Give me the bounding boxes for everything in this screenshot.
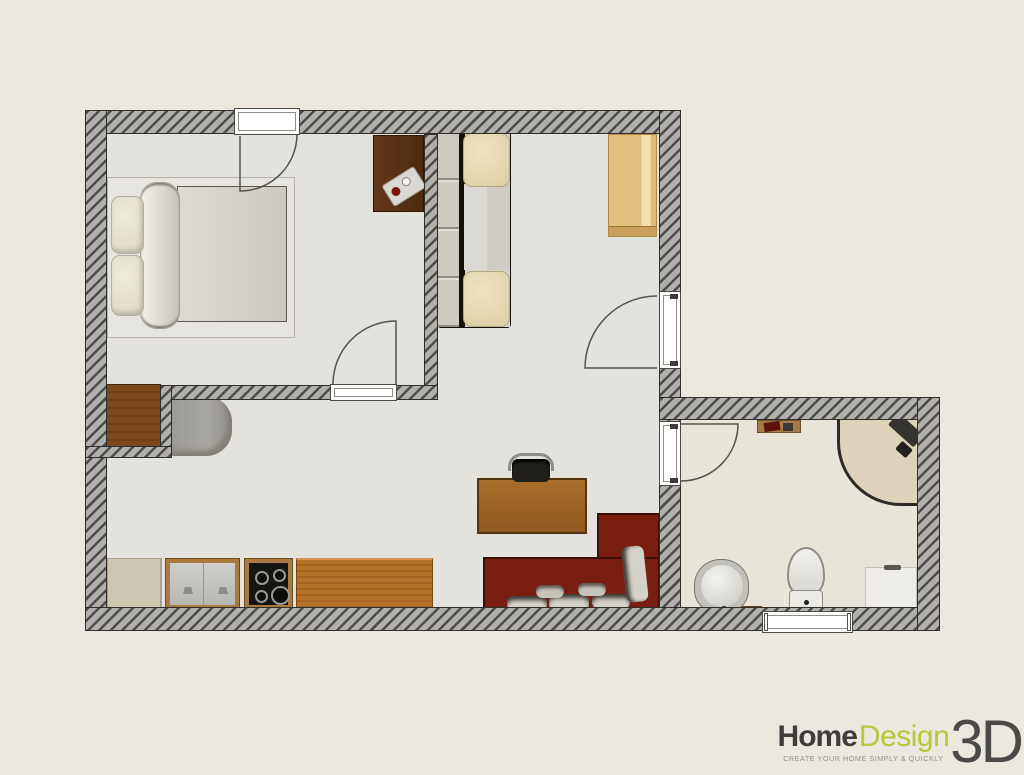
dresser[interactable] — [106, 384, 161, 447]
hinge-icon — [670, 478, 678, 483]
shelf-item — [763, 421, 780, 432]
tray-red-button — [390, 185, 402, 197]
white-sofa[interactable] — [437, 130, 511, 328]
wall-north[interactable] — [85, 110, 681, 134]
kitchen-cabinet[interactable] — [107, 558, 162, 610]
office-desk[interactable] — [477, 478, 587, 534]
wall-niche-south[interactable] — [85, 446, 172, 458]
door-frame — [663, 295, 677, 365]
logo-word-design: Design — [859, 720, 949, 753]
double-bed[interactable] — [177, 186, 287, 322]
door-frame — [334, 388, 393, 397]
office-chair-seat[interactable] — [512, 459, 550, 482]
burner-icon — [273, 569, 286, 582]
cooktop[interactable] — [244, 558, 293, 610]
bidet-bowl — [701, 565, 743, 607]
bathroom-window[interactable] — [762, 611, 853, 633]
flush-button-icon — [804, 600, 809, 605]
logo-word-home: Home — [778, 720, 857, 753]
sofa-pillow — [463, 133, 510, 187]
tray-dial — [400, 175, 412, 187]
bidet[interactable] — [694, 559, 749, 613]
floor-plan — [0, 0, 1024, 768]
window-end-cap — [847, 613, 851, 631]
sink-divider — [203, 563, 204, 605]
armchair[interactable] — [170, 396, 232, 456]
logo-tagline: CREATE YOUR HOME SIMPLY & QUICKLY — [783, 754, 943, 763]
washer-handle — [884, 565, 901, 570]
hinge-icon — [670, 361, 678, 366]
brand-logo: HomeDesign CREATE YOUR HOME SIMPLY & QUI… — [778, 719, 1021, 766]
sofa-backrest — [438, 131, 459, 327]
burner-icon — [255, 571, 269, 585]
burner-icon — [255, 590, 268, 603]
media-tray[interactable] — [381, 166, 426, 207]
bed-bolster[interactable] — [140, 182, 180, 329]
door-frame — [663, 425, 677, 482]
window-end-cap — [764, 613, 768, 631]
sofa-pillow — [578, 583, 606, 596]
wall-bathroom-north[interactable] — [659, 397, 940, 420]
wall-bathroom-east[interactable] — [917, 397, 940, 631]
sofa-seat-cushion — [487, 184, 510, 270]
kitchen-counter[interactable] — [296, 558, 433, 608]
entry-door[interactable] — [659, 291, 681, 369]
bedroom-south-door[interactable] — [330, 384, 397, 401]
sofa-seat-cushion — [464, 184, 487, 270]
burner-icon — [271, 586, 290, 605]
window-frame — [766, 615, 849, 629]
bed-pillow[interactable] — [111, 255, 144, 316]
bed-pillow[interactable] — [111, 196, 144, 254]
door-frame — [238, 112, 296, 131]
wall-west[interactable] — [85, 110, 107, 631]
wall-bedroom-east[interactable] — [424, 134, 438, 397]
hinge-icon — [670, 424, 678, 429]
sofa-pillow — [536, 585, 564, 598]
canvas: HomeDesign CREATE YOUR HOME SIMPLY & QUI… — [0, 0, 1024, 768]
kitchen-sink[interactable] — [165, 558, 240, 610]
wardrobe[interactable] — [608, 134, 657, 237]
logo-word-3d: 3D — [950, 719, 1021, 766]
bathroom-wall-shelf[interactable] — [757, 420, 801, 433]
bedroom-north-door[interactable] — [234, 108, 300, 135]
bedroom-desk[interactable] — [373, 135, 424, 212]
sofa-pillow — [463, 271, 510, 327]
wardrobe-base — [609, 226, 656, 236]
logo-wordmark: HomeDesign CREATE YOUR HOME SIMPLY & QUI… — [778, 722, 950, 766]
bathroom-door[interactable] — [659, 421, 681, 486]
washing-machine[interactable] — [865, 567, 917, 608]
shelf-item — [783, 423, 793, 431]
hinge-icon — [670, 294, 678, 299]
